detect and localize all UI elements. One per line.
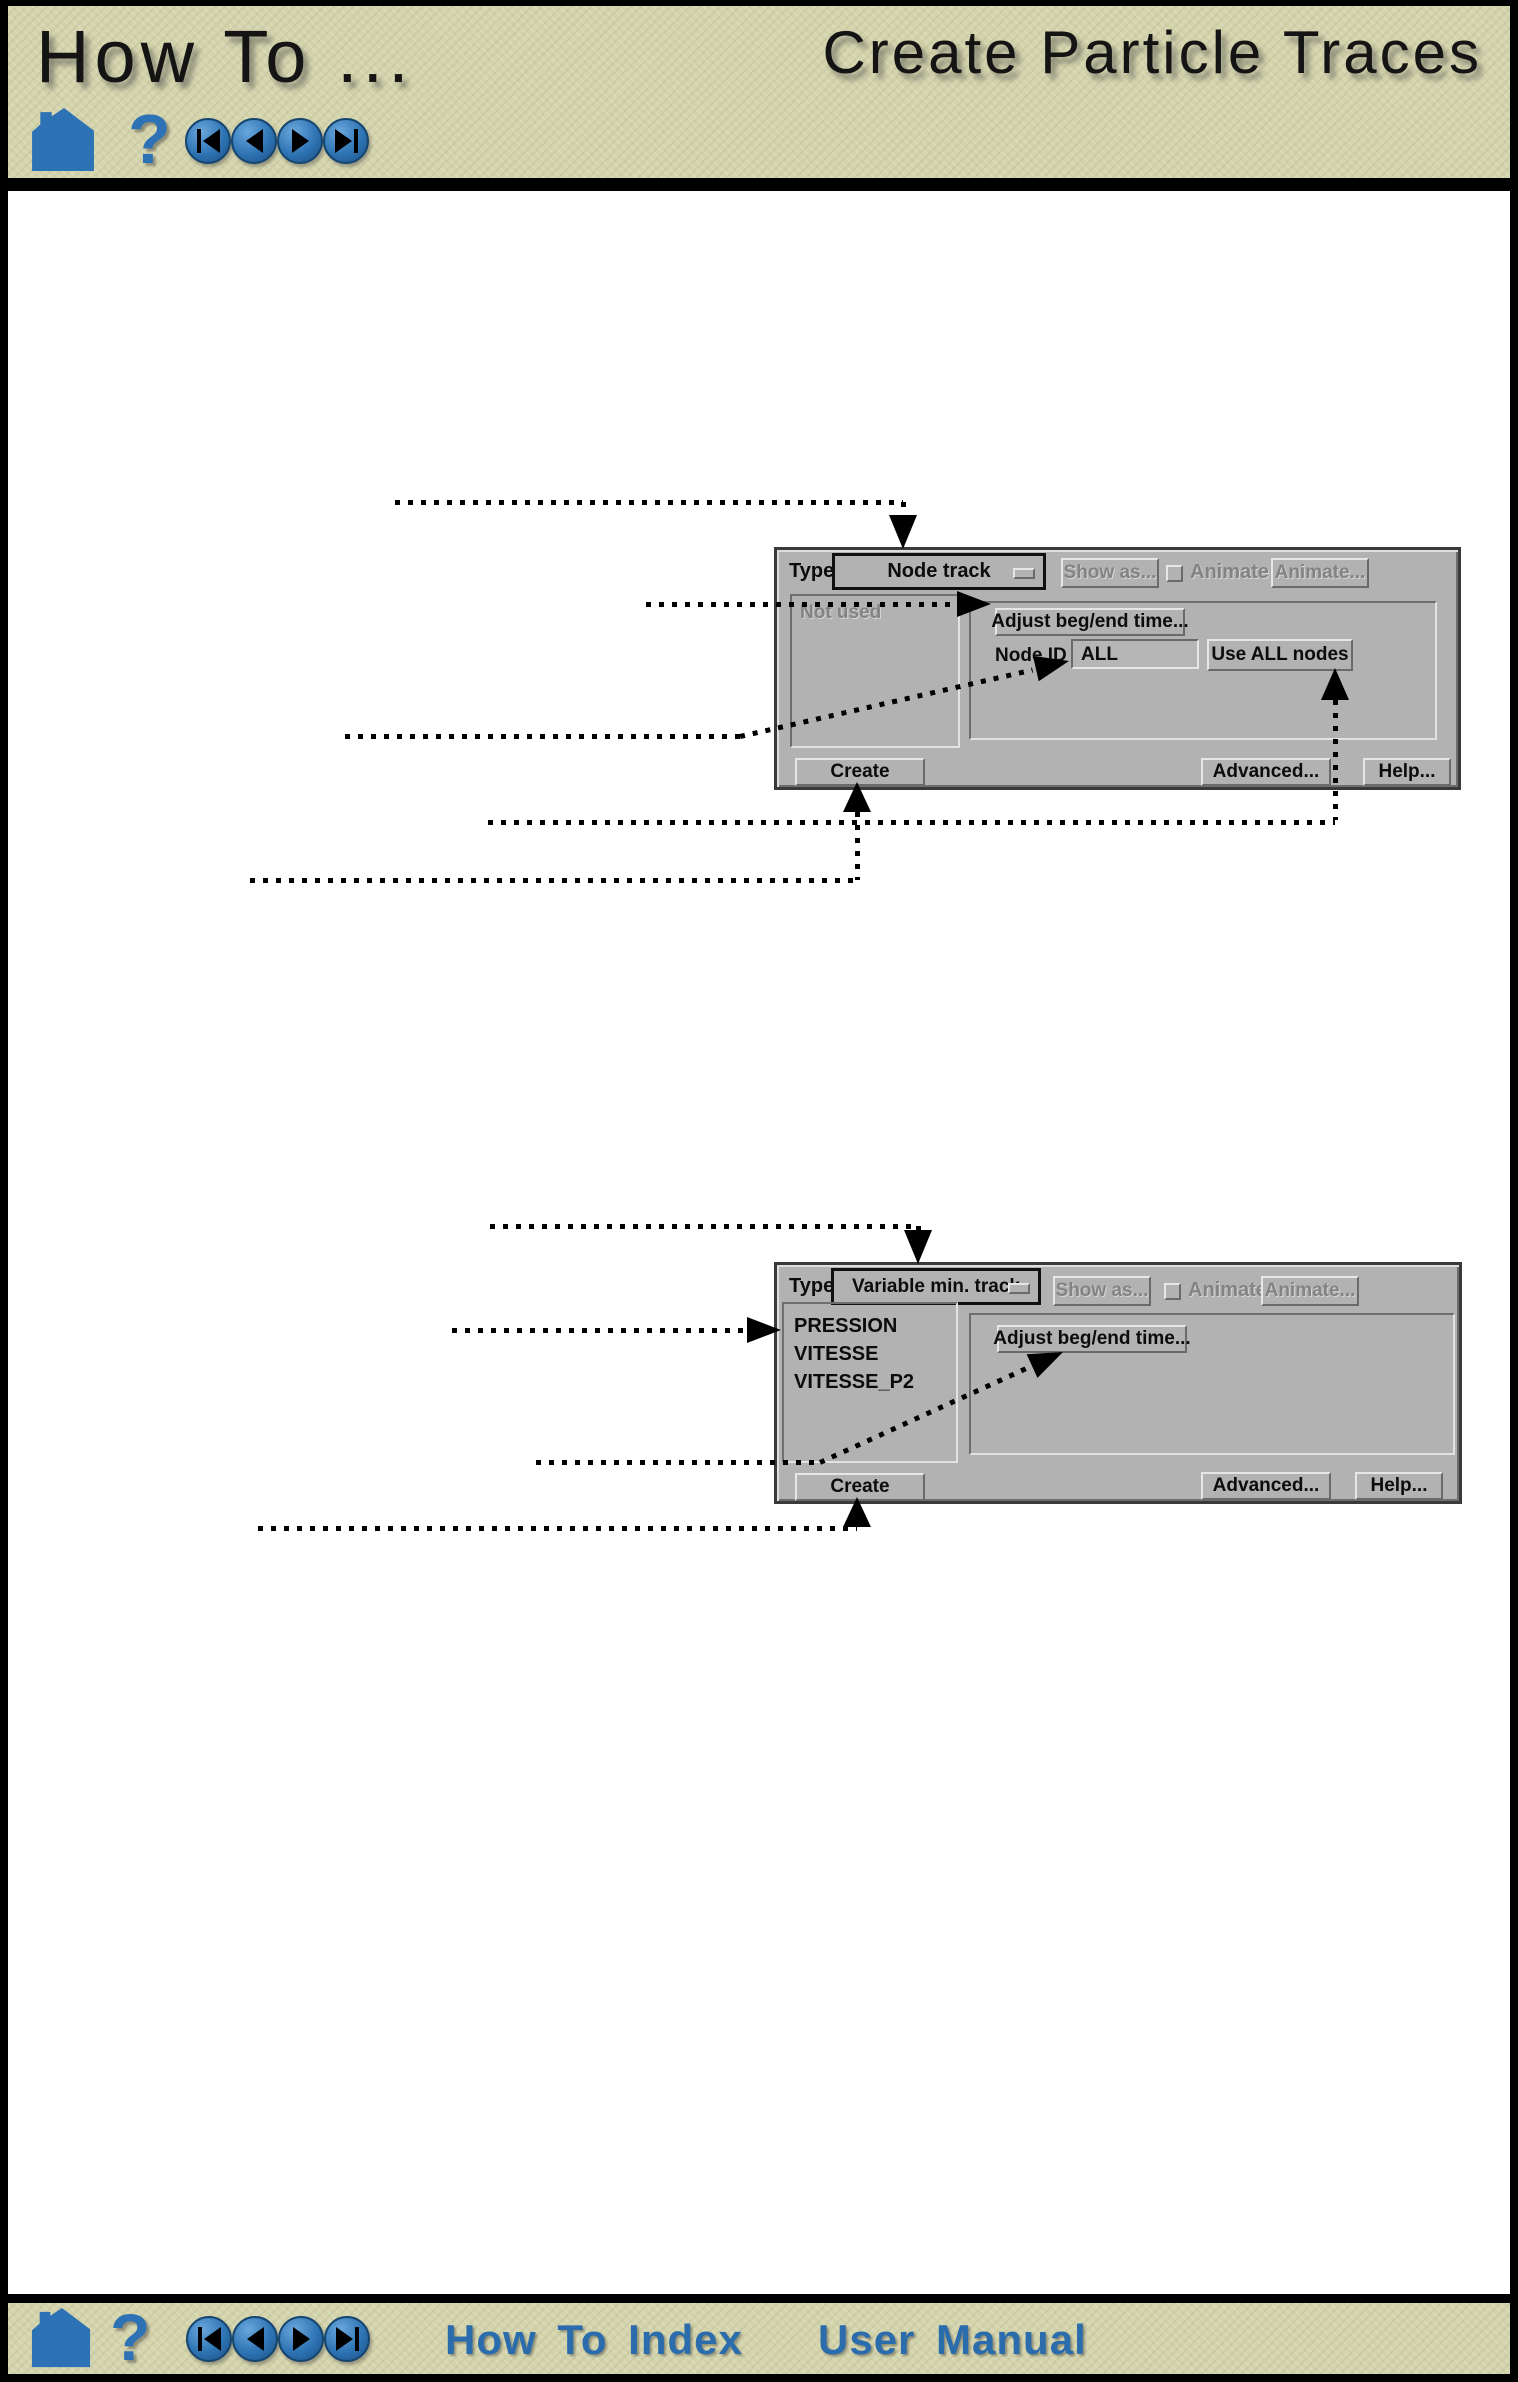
list-item[interactable]: VITESSE [794,1340,956,1368]
type-dropdown[interactable]: Variable min. track [831,1268,1041,1305]
border-right [1510,0,1518,2382]
arrow-to-create1 [843,782,871,812]
nav-previous-button[interactable] [232,2316,278,2362]
nav-previous-button[interactable] [231,118,277,164]
animate-checkbox[interactable] [1164,1283,1181,1300]
help-button[interactable]: Help... [1363,758,1451,786]
next-icon [292,129,309,153]
type-dropdown-value: Variable min. track [852,1276,1020,1298]
skip-to-first-icon [197,129,201,153]
annotation-line-useall-stem [1333,700,1338,820]
annotation-line-create2 [258,1526,857,1531]
animate-label: Animate [1188,1279,1267,1302]
nav-first-button[interactable] [186,2316,232,2362]
variable-track-dialog: Type Variable min. track Show as... Anim… [774,1262,1462,1504]
help-icon[interactable]: ? [128,104,171,174]
help-button[interactable]: Help... [1355,1472,1443,1500]
annotation-line-varlist [452,1328,747,1333]
annotation-line-create1-stem [855,812,860,880]
nav-last-button[interactable] [323,118,369,164]
options-frame: Adjust beg/end time... [969,1313,1455,1455]
border-left [0,0,8,2382]
howto-page: How To ... Create Particle Traces ? Type… [0,0,1518,2382]
animate-checkbox[interactable] [1166,565,1183,582]
nav-first-button[interactable] [185,118,231,164]
list-item[interactable]: PRESSION [794,1312,956,1340]
option-menu-indicator-icon [1008,1283,1030,1294]
page-title: How To ... [36,14,414,99]
node-id-value: ALL [1081,644,1118,666]
animate-label: Animate [1190,561,1269,584]
node-id-input[interactable]: ALL [1071,639,1199,669]
annotation-line-type2 [490,1224,918,1229]
animate-button[interactable]: Animate... [1271,558,1369,588]
annotation-line-adjust2 [536,1460,820,1465]
next-icon [293,2327,310,2351]
arrow-to-create2 [843,1497,871,1527]
annotation-line-type1 [395,500,903,505]
adjust-time-button[interactable]: Adjust beg/end time... [997,1325,1187,1353]
option-menu-indicator-icon [1013,568,1035,579]
show-as-button[interactable]: Show as... [1061,558,1159,588]
advanced-button[interactable]: Advanced... [1201,1472,1331,1500]
part-list[interactable]: Not used [790,594,960,748]
user-manual-link[interactable]: User Manual [818,2316,1087,2364]
adjust-time-button[interactable]: Adjust beg/end time... [995,608,1185,636]
annotation-line-frame1 [646,602,956,607]
arrow-to-type-dropdown2 [904,1230,932,1264]
footer-separator [0,2294,1518,2303]
nav-next-button[interactable] [278,2316,324,2362]
home-icon[interactable] [30,2306,92,2370]
previous-icon [247,2327,264,2351]
help-icon[interactable]: ? [110,2304,150,2370]
border-bottom [0,2374,1518,2382]
type-label: Type [789,560,834,583]
annotation-line-nodeid [345,734,740,739]
arrow-to-use-all-nodes [1321,668,1349,700]
type-label: Type [789,1275,834,1298]
skip-to-first-icon [198,2327,202,2351]
annotation-line-create1 [250,878,857,883]
topic-title: Create Particle Traces [822,18,1482,87]
header-separator [0,178,1518,191]
arrow-to-options-frame1 [957,591,991,617]
type-dropdown[interactable]: Node track [832,553,1046,590]
animate-button[interactable]: Animate... [1261,1276,1359,1306]
how-to-index-link[interactable]: How To Index [445,2316,743,2364]
list-item[interactable]: VITESSE_P2 [794,1368,956,1396]
node-track-dialog: Type Node track Show as... Animate Anima… [774,547,1461,790]
skip-to-last-icon [336,2327,353,2351]
arrow-to-variable-list [747,1317,781,1343]
show-as-button[interactable]: Show as... [1053,1276,1151,1306]
home-icon[interactable] [30,106,96,174]
use-all-nodes-button[interactable]: Use ALL nodes [1207,639,1353,671]
type-dropdown-value: Node track [887,560,990,583]
advanced-button[interactable]: Advanced... [1201,758,1331,786]
nav-last-button[interactable] [324,2316,370,2362]
nav-next-button[interactable] [277,118,323,164]
arrow-to-type-dropdown1 [889,515,917,549]
skip-to-last-icon [335,129,352,153]
previous-icon [246,129,263,153]
annotation-line-useall [488,820,1335,825]
